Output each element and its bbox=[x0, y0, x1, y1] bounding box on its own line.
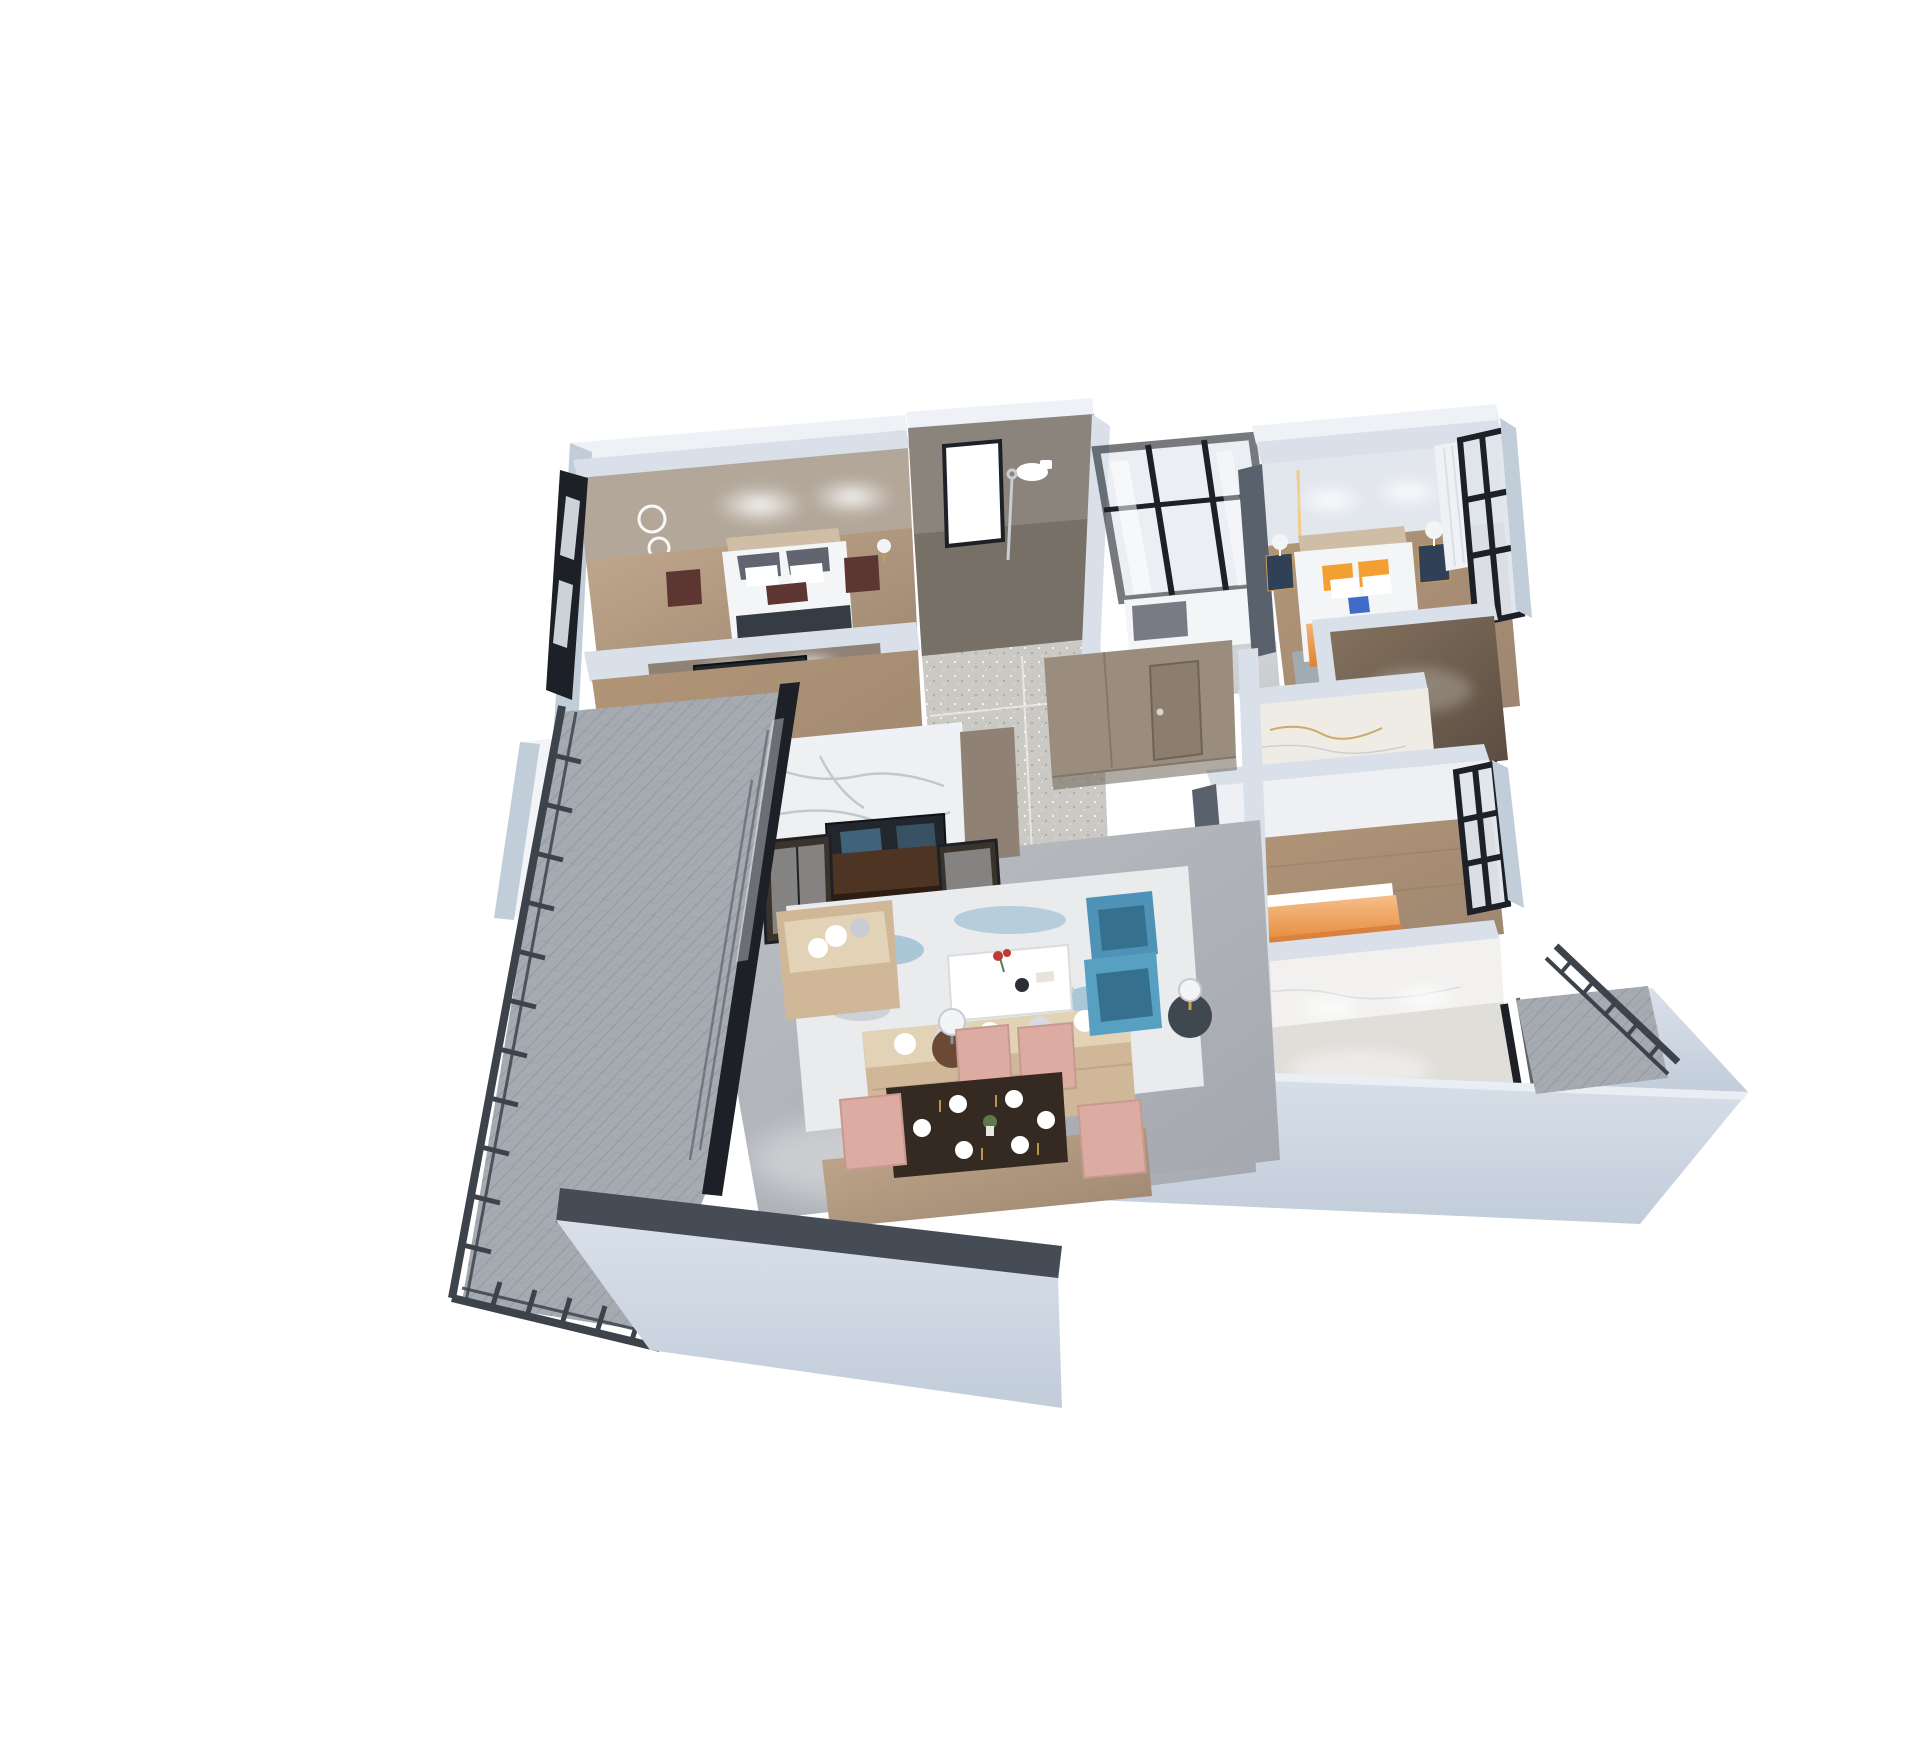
blue-accent-pillow bbox=[1348, 596, 1370, 614]
bathroom-wall-lower bbox=[914, 518, 1100, 658]
throw-pillow bbox=[825, 925, 847, 947]
pillow bbox=[1362, 574, 1392, 596]
throw-pillow bbox=[808, 938, 828, 958]
chair-seat bbox=[1098, 905, 1148, 951]
blue-armchair-2 bbox=[1084, 952, 1162, 1036]
pillow bbox=[745, 565, 779, 587]
apartment-isometric-svg bbox=[0, 0, 1920, 1754]
front-wall-left bbox=[556, 1188, 1062, 1408]
shower-door-white bbox=[944, 441, 1003, 546]
nightstand bbox=[1266, 553, 1294, 591]
sofa-chaise bbox=[776, 900, 900, 1020]
table-top bbox=[948, 945, 1072, 1021]
coffee-table bbox=[948, 945, 1072, 1021]
accent-pillow bbox=[766, 582, 808, 605]
cabinet-run bbox=[1044, 640, 1236, 778]
spotlight-glow bbox=[714, 485, 806, 525]
spotlight-glow bbox=[810, 479, 894, 515]
tray bbox=[1015, 978, 1029, 992]
door-handle bbox=[1157, 709, 1164, 716]
nightstand bbox=[844, 555, 880, 593]
chair-seat bbox=[1096, 968, 1153, 1022]
lamp-shade bbox=[1179, 979, 1201, 1001]
balcony-right bbox=[1516, 946, 1678, 1094]
spotlight-glow bbox=[1370, 475, 1446, 509]
tv-art-blue bbox=[840, 828, 882, 854]
pillow bbox=[790, 563, 824, 585]
dining-chair-right bbox=[1078, 1100, 1146, 1178]
entry-cabinets bbox=[1044, 640, 1237, 790]
tv-art-blue bbox=[896, 823, 936, 849]
spotlight-glow bbox=[1292, 483, 1368, 517]
blue-armchair-1 bbox=[1086, 891, 1158, 961]
patterned-pillow bbox=[1132, 601, 1188, 641]
throw-pillow bbox=[850, 918, 870, 938]
book bbox=[1036, 971, 1055, 983]
dining-chair-left bbox=[840, 1094, 906, 1170]
nightstand bbox=[666, 569, 702, 607]
floorplan-render bbox=[0, 0, 1920, 1754]
pillow bbox=[1330, 577, 1360, 599]
